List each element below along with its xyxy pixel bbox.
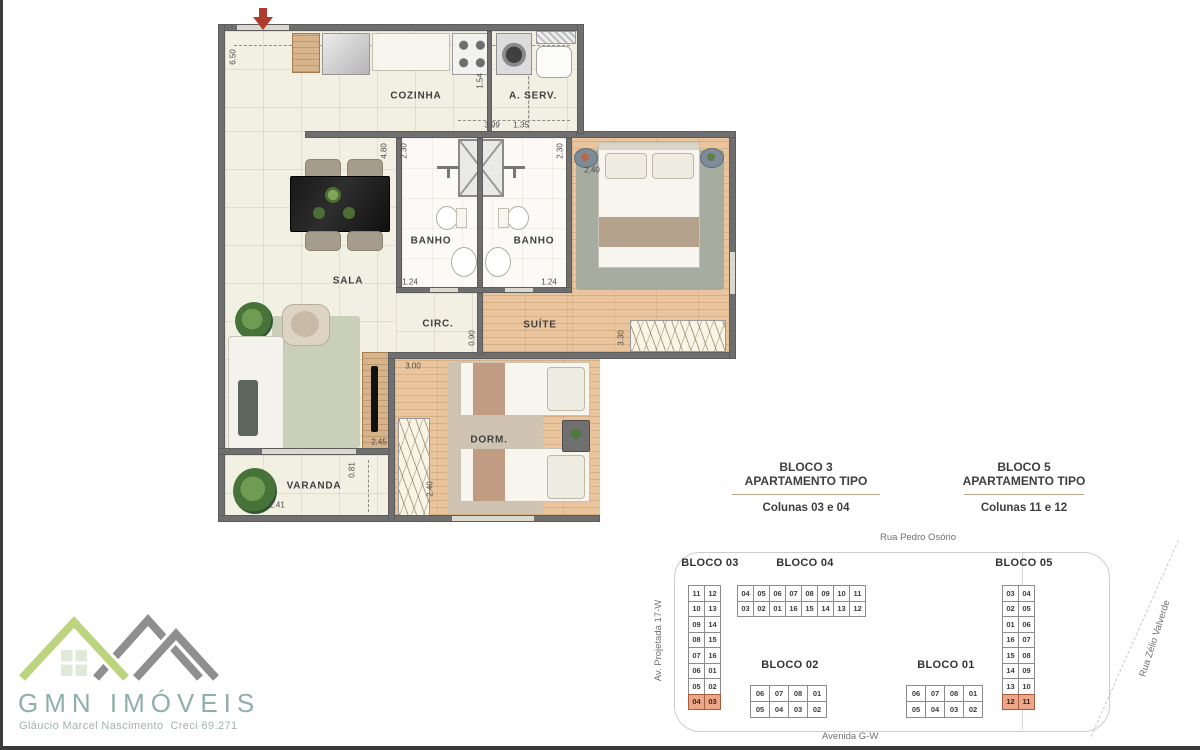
room-label: A. SERV. [509,91,557,102]
measurement-label: 6.50 [229,49,238,65]
unit-cell: 08 [788,685,808,702]
unit-cell: 06 [769,585,786,602]
dining-chair [347,231,383,251]
street-label-bottom: Avenida G-W [822,731,878,742]
block-grid: 0607080105040302 [750,685,836,718]
unit-cell: 12 [704,585,721,602]
blanket [599,217,699,247]
wall [477,293,483,355]
towel-bar [447,169,450,178]
unit-cell: 04 [769,701,789,718]
unit-cell: 05 [688,678,705,695]
wall [566,131,736,138]
street-label-right: Rua Zélio Valverde [1133,584,1177,692]
logo-name: GMN IMÓVEIS [18,688,260,719]
logo: GMN IMÓVEIS Gláucio Marcel Nascimento Cr… [12,608,252,743]
street-label-left: Av. Projetada 17-W [653,593,664,688]
legend-title: BLOCO 5 [962,460,1086,474]
block-bloco04: BLOCO 04 0405060708091011030201161514131… [735,557,875,600]
room-label: COZINHA [390,91,441,102]
unit-cell: 16 [1002,632,1019,649]
page: COZINHAA. SERV.BANHOBANHOSALACIRC.SUÍTED… [0,0,1200,750]
block-row: 0815 [688,632,760,649]
unit-cell: 05 [750,701,770,718]
sofa-cushion [238,380,258,436]
unit-cell: 10 [688,601,705,618]
measurement-label: 0.90 [468,330,477,346]
unit-cell: 05 [1018,601,1035,618]
nightstand [700,148,724,168]
legend-columns: Colunas 11 e 12 [962,502,1086,514]
wall [396,287,572,293]
block-grid: 04050607080910110302011615141312 [737,585,877,617]
legend-subtitle: APARTAMENTO TIPO [962,474,1086,488]
room-label: DORM. [470,435,507,446]
plate [325,187,341,203]
unit-cell: 01 [704,663,721,680]
unit-cell: 07 [785,585,802,602]
unit-cell: 15 [801,601,818,618]
room-label: CIRC. [422,319,453,330]
wall [477,138,483,290]
logo-subtitle: Gláucio Marcel Nascimento Creci 69.271 [19,720,238,732]
logo-icon [16,608,231,688]
unit-cell: 13 [833,601,850,618]
block-row: 05040302 [750,701,836,718]
kitchen-sink [322,33,370,75]
unit-cell: 14 [817,601,834,618]
room-label: BANHO [514,236,555,247]
unit-cell: 04 [737,585,754,602]
block-title: BLOCO 01 [903,659,989,671]
laundry-tank [536,46,572,78]
pillow [547,455,585,499]
dorm-wardrobe [398,418,430,516]
unit-cell: 09 [817,585,834,602]
unit-cell: 09 [688,616,705,633]
unit-cell: 16 [785,601,802,618]
wall [305,131,577,138]
dashed-line [368,460,369,512]
unit-cell: 01 [1002,616,1019,633]
unit-cell: 02 [704,678,721,695]
dorm-window [452,516,534,521]
measurement-label: 3.99 [484,121,500,130]
legend-rule [964,494,1084,495]
unit-cell: 15 [1002,647,1019,664]
wall [388,352,736,359]
block-row: 0106 [1002,616,1074,633]
block-row: 0304 [1002,585,1074,602]
plate [313,207,325,219]
unit-cell: 03 [704,694,721,711]
frame-edge-bottom [0,746,1200,750]
room-label: BANHO [411,236,452,247]
block-row: 1508 [1002,647,1074,664]
unit-cell: 15 [704,632,721,649]
unit-cell: 07 [769,685,789,702]
measurement-label: 2.30 [400,143,409,159]
frame-edge-left [0,0,3,750]
unit-cell: 02 [963,701,983,718]
suite-window [730,252,735,294]
unit-cell: 03 [944,701,964,718]
unit-cell: 11 [849,585,866,602]
tv [371,366,378,432]
north-arrow-icon [253,17,273,30]
wall [218,448,225,522]
block-row: 0405060708091011 [737,585,877,602]
legend-columns: Colunas 03 e 04 [730,502,882,514]
legend-bloco3: BLOCO 3 APARTAMENTO TIPO Colunas 03 e 04 [730,460,882,514]
street-label-top: Rua Pedro Osório [880,532,956,543]
room-label: VARANDA [287,481,342,492]
unit-cell: 06 [906,685,926,702]
wall [487,31,492,131]
wall [577,24,584,134]
unit-cell: 01 [769,601,786,618]
bath-sink [451,247,477,277]
towel-bar [513,169,516,178]
toilet [507,206,529,230]
room-label: SALA [333,276,363,287]
measurement-label: 4.80 [380,143,389,159]
unit-cell: 02 [1002,601,1019,618]
washing-machine [496,33,532,75]
unit-cell: 11 [688,585,705,602]
unit-cell: 12 [849,601,866,618]
pillow [547,367,585,411]
unit-cell: 08 [944,685,964,702]
block-row: 0205 [1002,601,1074,618]
pillow [605,153,647,179]
block-grid: 03040205010616071508140913101211 [1002,585,1074,710]
measurement-label: 2.40 [426,481,435,497]
unit-cell: 04 [688,694,705,711]
unit-cell: 03 [788,701,808,718]
site-plan: Rua Pedro Osório Avenida G-W Av. Projeta… [640,525,1200,750]
suite-wardrobe [630,320,726,352]
measurement-label: 3.00 [405,362,421,371]
block-bloco05: BLOCO 05 0304020501061607150814091310121… [988,557,1060,693]
sala-plant [235,302,273,340]
dining-table [290,176,390,232]
unit-cell: 08 [801,585,818,602]
measurement-label: 2.45 [371,438,387,447]
wall [729,131,736,359]
block-row: 05040302 [906,701,992,718]
unit-cell: 10 [833,585,850,602]
measurement-label: 2.30 [556,143,565,159]
unit-cell: 08 [1018,647,1035,664]
measurement-label: 3.30 [617,330,626,346]
unit-cell: 06 [688,663,705,680]
unit-cell: 05 [906,701,926,718]
bath-sink [485,247,511,277]
unit-cell: 04 [1018,585,1035,602]
toilet-tank [498,208,509,228]
toilet-tank [456,208,467,228]
block-row: 06070801 [906,685,992,702]
unit-cell: 09 [1018,663,1035,680]
unit-cell: 03 [737,601,754,618]
single-bed [460,448,590,502]
legend-bloco5: BLOCO 5 APARTAMENTO TIPO Colunas 11 e 12 [962,460,1086,514]
block-title: BLOCO 04 [735,557,875,569]
vent-grate [536,31,576,44]
dorm-nightstand [562,420,590,452]
measurement-label: 1.24 [402,278,418,287]
unit-cell: 06 [750,685,770,702]
unit-cell: 13 [1002,678,1019,695]
double-bed [598,142,700,268]
room-label: SUÍTE [523,320,556,331]
measurement-label: 0.81 [348,462,357,478]
unit-cell: 01 [807,685,827,702]
block-row: 06070801 [750,685,836,702]
wall [388,352,395,522]
block-bloco02: BLOCO 02 0607080105040302 [747,659,833,703]
wall [566,138,572,290]
unit-cell: 16 [704,647,721,664]
unit-cell: 07 [688,647,705,664]
unit-cell: 04 [925,701,945,718]
block-title: BLOCO 02 [747,659,833,671]
measurement-label: 2.41 [269,501,285,510]
measurement-label: 1.54 [476,73,485,89]
measurement-label: 1.24 [541,278,557,287]
banho-door [430,288,458,292]
banho-door [505,288,533,292]
block-row: 1409 [1002,663,1074,680]
unit-cell: 05 [753,585,770,602]
legend-subtitle: APARTAMENTO TIPO [730,474,882,488]
block-row: 0302011615141312 [737,601,877,618]
unit-cell: 07 [1018,632,1035,649]
unit-cell: 13 [704,601,721,618]
kitchen-counter [372,33,450,71]
unit-cell: 06 [1018,616,1035,633]
unit-cell: 14 [704,616,721,633]
wall [218,24,225,455]
unit-cell: 02 [753,601,770,618]
toilet [436,206,458,230]
unit-cell: 10 [1018,678,1035,695]
block-row: 1607 [1002,632,1074,649]
legend-rule [732,494,880,495]
armchair [282,304,330,346]
unit-cell: 01 [963,685,983,702]
unit-cell: 14 [1002,663,1019,680]
measurement-label: 1.35 [513,121,529,130]
unit-cell: 02 [807,701,827,718]
sliding-door [262,449,356,454]
single-bed [460,362,590,416]
wall [218,515,393,522]
block-bloco01: BLOCO 01 0607080105040302 [903,659,989,703]
kitchen-counter-board [292,33,320,73]
legend-title: BLOCO 3 [730,460,882,474]
unit-cell: 08 [688,632,705,649]
unit-cell: 03 [1002,585,1019,602]
unit-cell: 11 [1018,694,1035,711]
block-row: 1310 [1002,678,1074,695]
pillow [652,153,694,179]
blanket [473,363,505,415]
block-title: BLOCO 05 [988,557,1060,569]
unit-cell: 12 [1002,694,1019,711]
block-row: 0914 [688,616,760,633]
block-row: 1211 [1002,694,1074,711]
blanket [473,449,505,501]
unit-cell: 07 [925,685,945,702]
measurement-label: 2.40 [584,166,600,175]
wall [396,138,402,290]
dining-chair [305,231,341,251]
stove [452,33,492,75]
plate [343,207,355,219]
block-grid: 0607080105040302 [906,685,992,718]
floorplan: COZINHAA. SERV.BANHOBANHOSALACIRC.SUÍTED… [0,0,760,540]
